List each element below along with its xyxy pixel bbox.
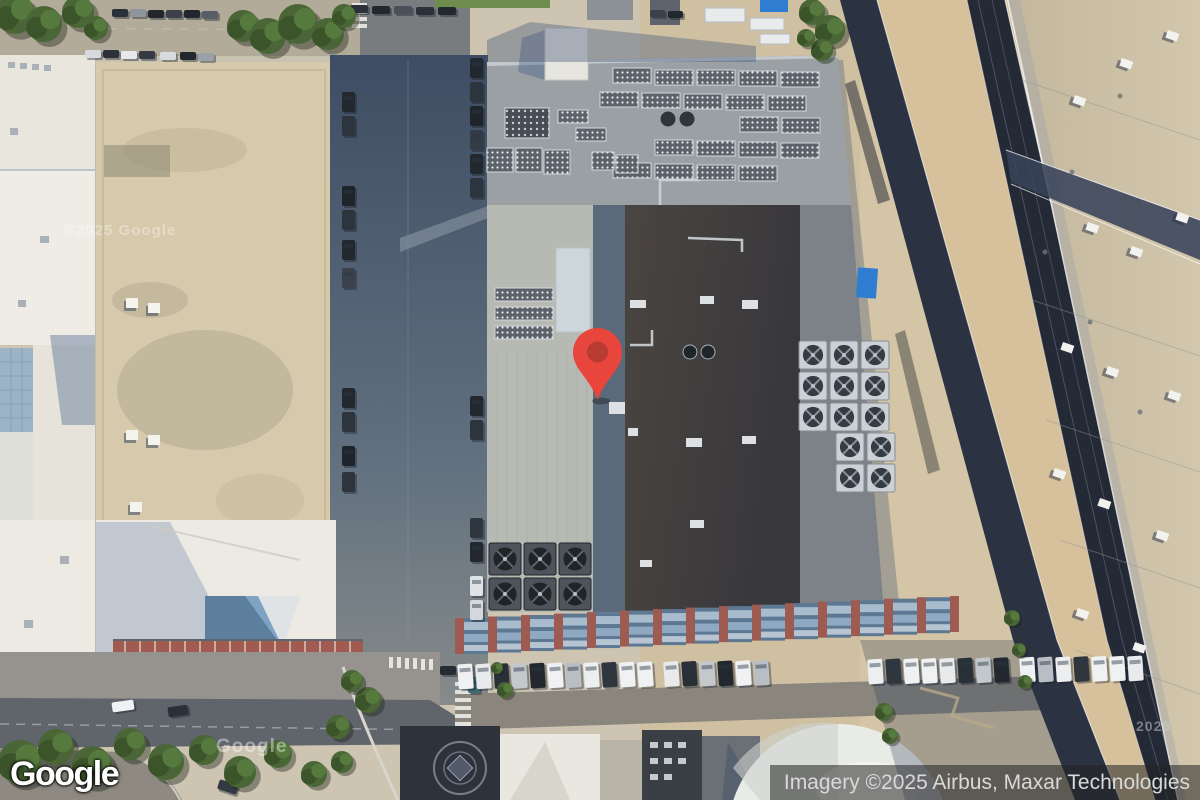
building-white-bottom-left xyxy=(96,520,363,658)
street-vertical xyxy=(330,55,488,705)
attribution-text: Imagery ©2025 Airbus, Maxar Technologies xyxy=(784,771,1190,795)
building-complex-central xyxy=(487,0,900,612)
google-logo[interactable]: Google xyxy=(10,755,118,794)
satellite-map-canvas[interactable] xyxy=(0,0,1200,800)
building-white-left xyxy=(0,55,96,692)
attribution-bar: Imagery ©2025 Airbus, Maxar Technologies xyxy=(770,765,1200,800)
map-viewport[interactable]: ©2025 Google Google 2025 Google Imagery … xyxy=(0,0,1200,800)
